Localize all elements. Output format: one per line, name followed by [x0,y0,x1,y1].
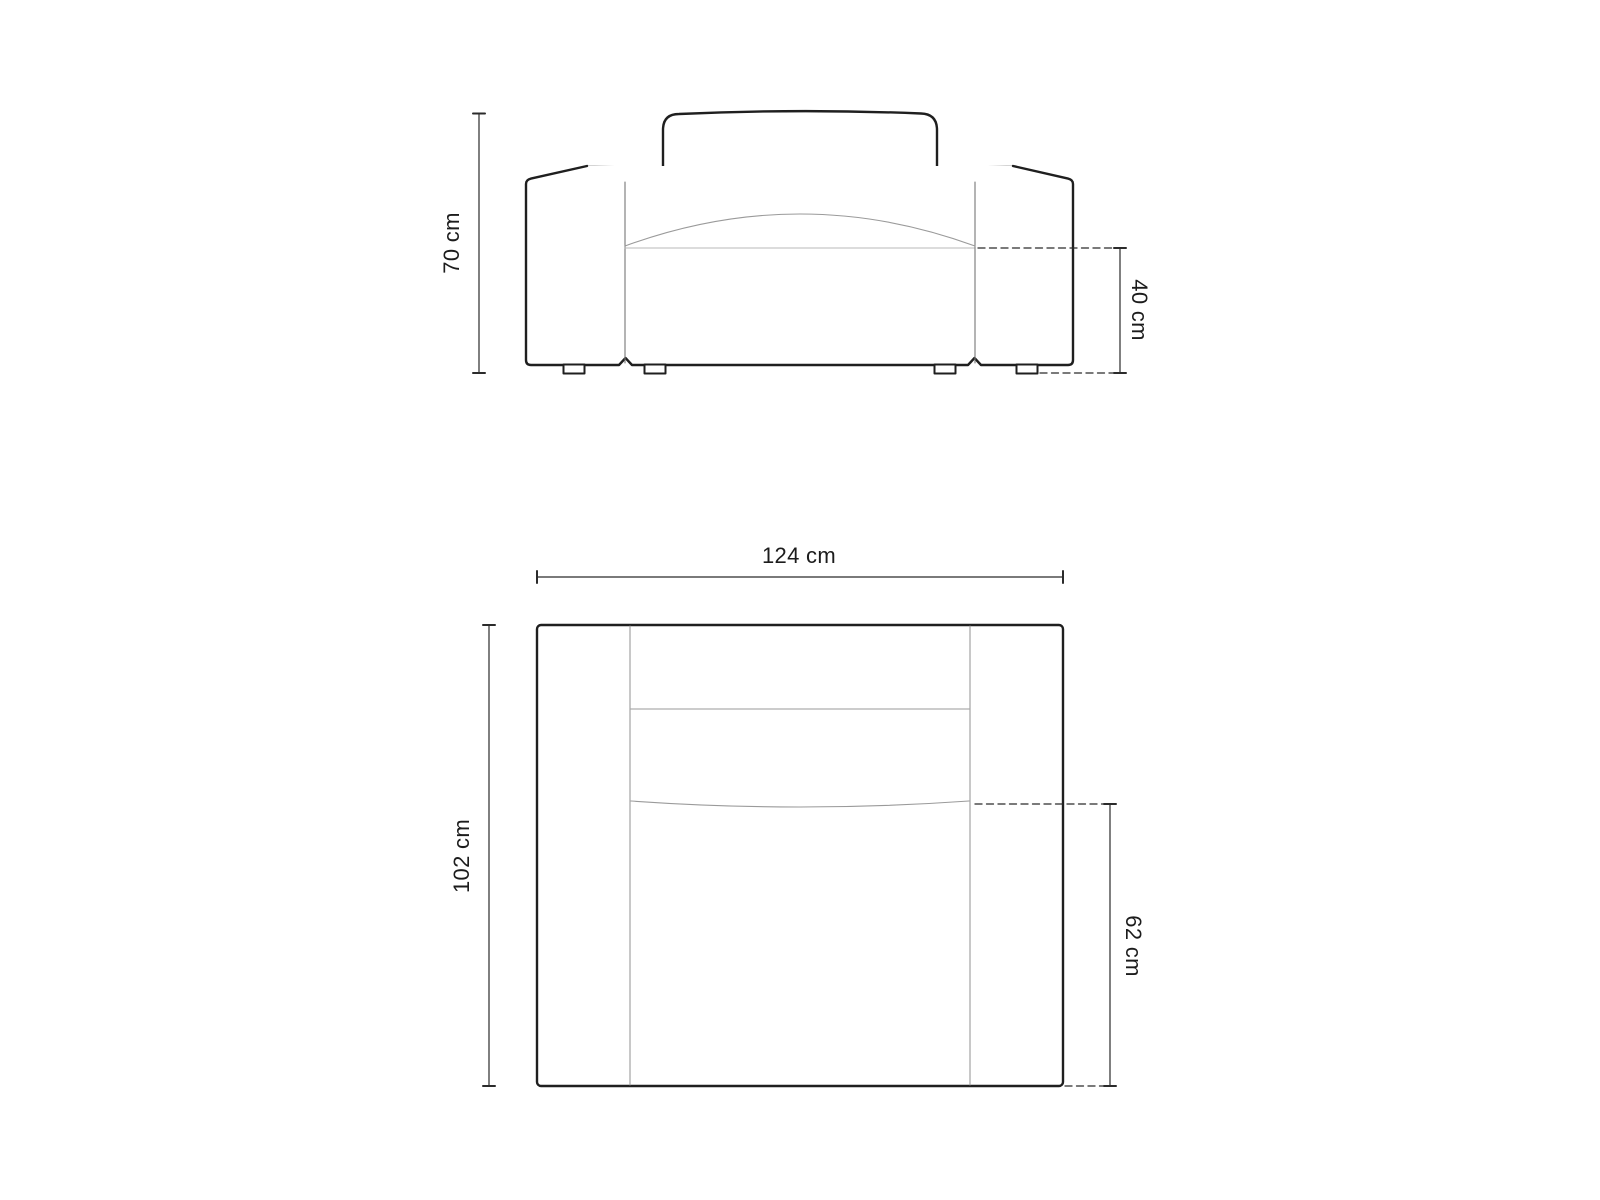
dimension-102cm [483,625,495,1086]
leg [935,365,956,374]
dimension-70cm [473,114,485,374]
front-height-dimension-label: 70 cm [441,212,463,273]
front-seat-height-dimension-label: 40 cm [1128,279,1150,340]
front-elevation-view [473,111,1126,373]
dimension-124cm [537,571,1063,583]
backrest-outline [663,111,937,171]
body-silhouette [526,166,1073,365]
line-art-canvas [0,0,1600,1200]
plan-outline [537,625,1063,1086]
plan-width-dimension-label: 124 cm [762,545,836,567]
leg [1017,365,1038,374]
plan-seat-depth-dimension-label: 62 cm [1122,915,1144,976]
leg [564,365,585,374]
plan-view [483,571,1116,1086]
plan-depth-dimension-label: 102 cm [451,819,473,893]
leg [645,365,666,374]
furniture-dimension-diagram: 70 cm 40 cm 124 cm 102 cm 62 cm [0,0,1600,1200]
